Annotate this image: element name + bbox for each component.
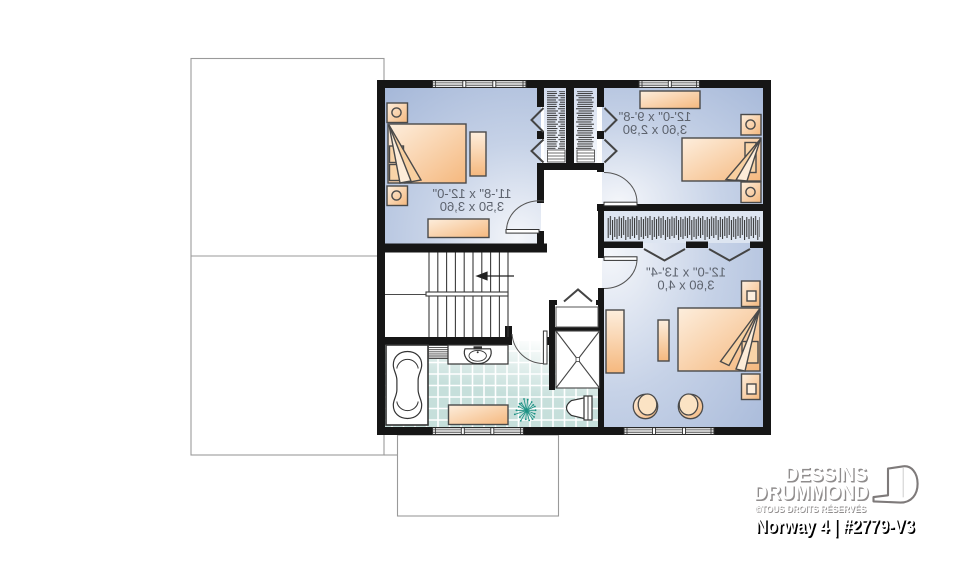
svg-text:©TOUS DROITS RÉSERVÉS: ©TOUS DROITS RÉSERVÉS — [755, 504, 866, 515]
svg-text:3,50 x 3,60: 3,50 x 3,60 — [440, 199, 504, 214]
svg-text:3,60 x 2,90: 3,60 x 2,90 — [623, 122, 687, 137]
svg-text:3,60 x 4,0: 3,60 x 4,0 — [657, 278, 714, 293]
svg-text:Norway 4 | #2779-V3: Norway 4 | #2779-V3 — [755, 516, 914, 537]
svg-text:DRUMMOND: DRUMMOND — [754, 481, 869, 505]
